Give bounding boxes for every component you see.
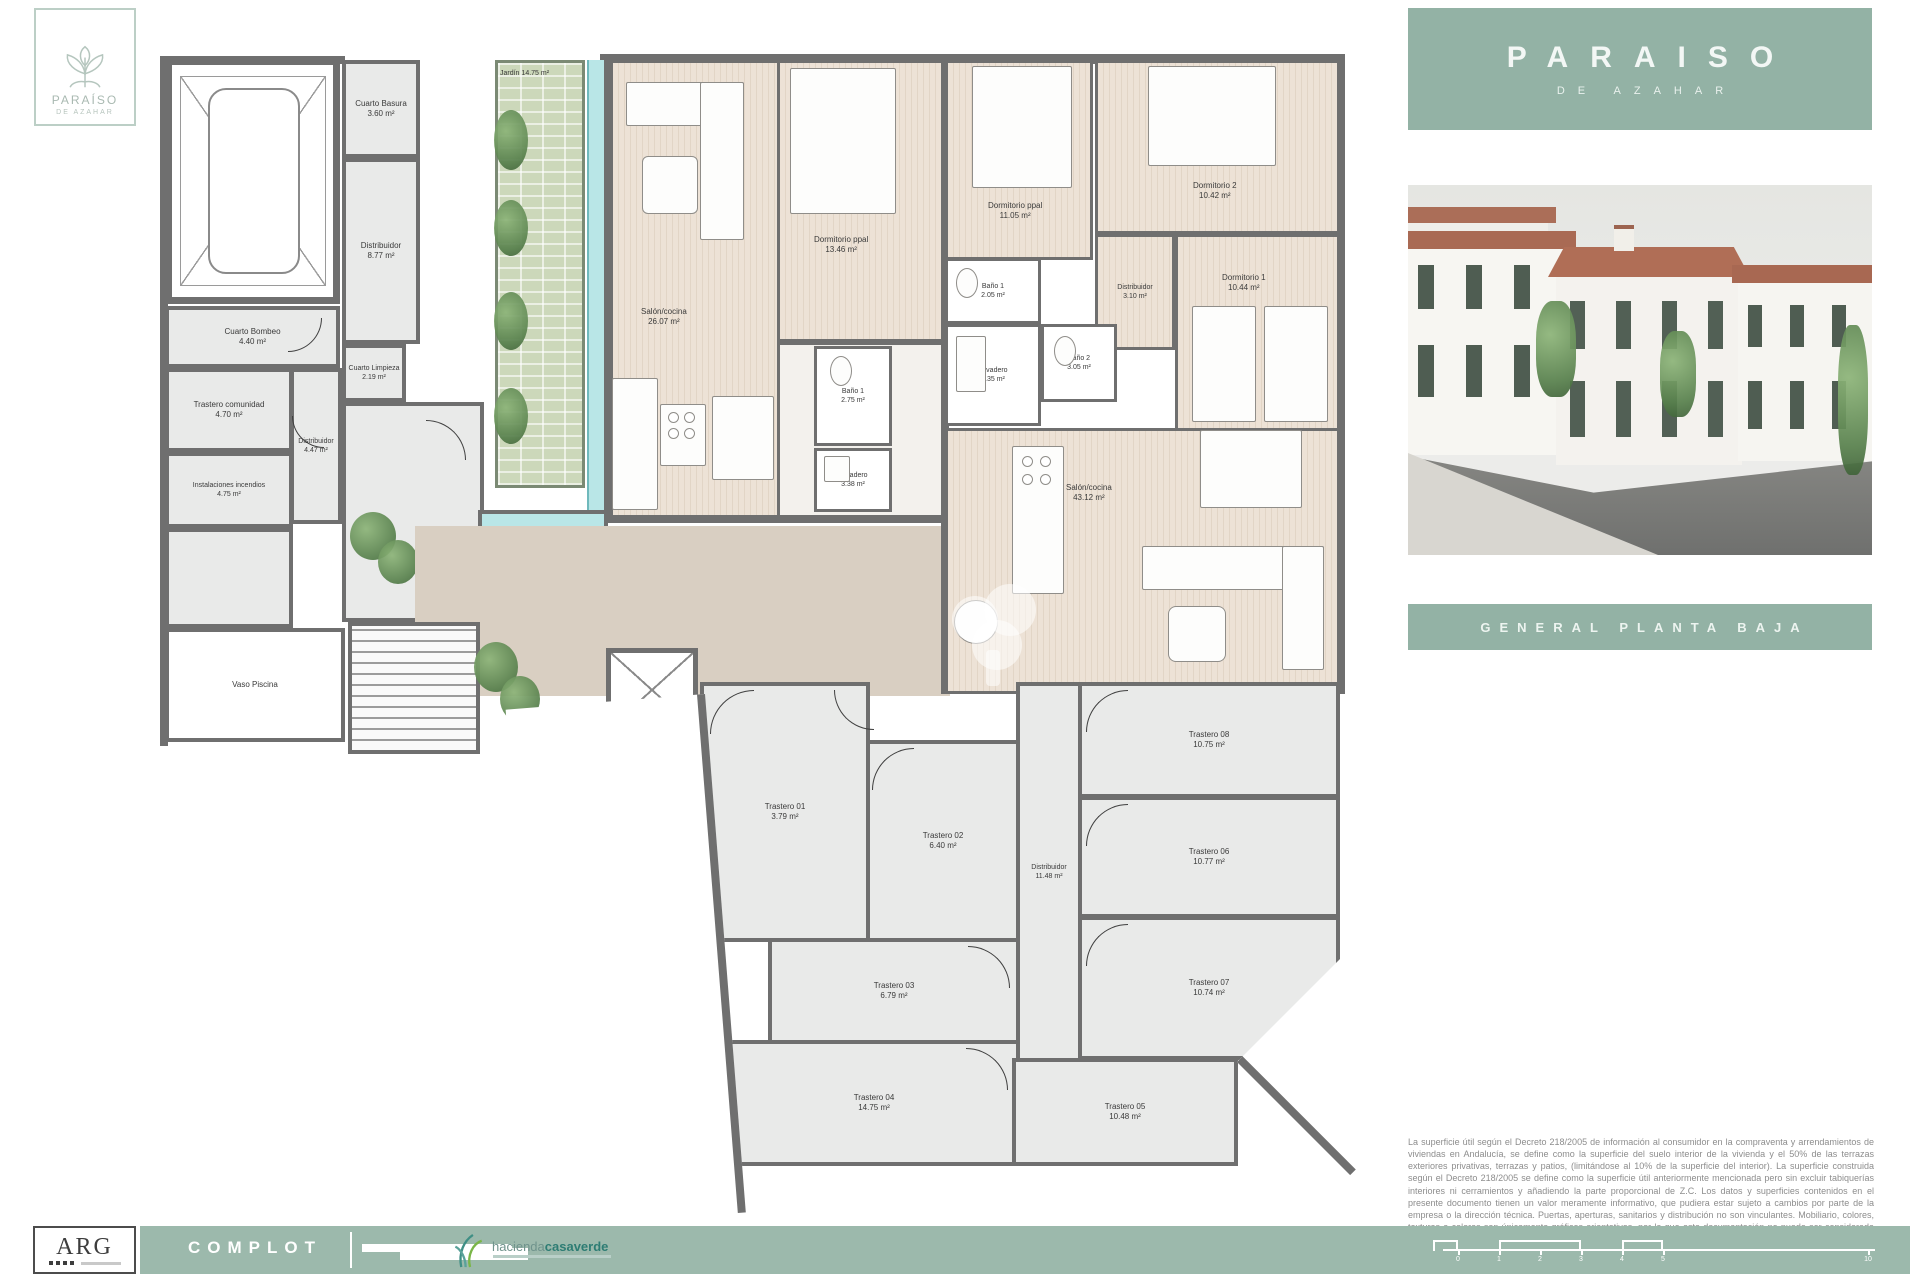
washer (824, 456, 850, 482)
car-outline (208, 88, 300, 274)
scale-bar: 0 1 2 3 4 5 10 (1395, 1232, 1900, 1268)
building-photo (1408, 185, 1872, 555)
panel-subtitle: DE AZAHAR (1544, 85, 1736, 97)
photo-window-row (1570, 301, 1730, 349)
plan-banner: GENERAL PLANTA BAJA (1408, 604, 1872, 650)
room-label: Dormitorio 210.42 m² (1193, 181, 1237, 202)
scale-number: 0 (1456, 1256, 1460, 1263)
room-label: Trastero 0510.48 m² (1105, 1102, 1146, 1123)
furniture-kitchen-counter (612, 378, 658, 510)
room-label: Trastero 0610.77 m² (1189, 847, 1230, 868)
room-trastero-comunidad: Trastero comunidad4.70 m² (165, 368, 293, 452)
room-label: Trastero 0710.74 m² (1189, 978, 1230, 999)
room-label: Dormitorio ppal13.46 m² (814, 235, 868, 256)
room-cuarto-basura: Cuarto Basura3.60 m² (342, 60, 420, 158)
furniture-bed (972, 66, 1072, 188)
room-instalaciones-incendios: Instalaciones incendios4.75 m² (165, 452, 293, 528)
burner (1040, 456, 1051, 467)
arg-logo-text: ARG (56, 1235, 113, 1259)
photo-roof (1408, 231, 1576, 249)
photo-window-row (1570, 381, 1730, 437)
burner (684, 412, 695, 423)
scale-number: 10 (1864, 1256, 1872, 1263)
scale-number: 1 (1497, 1256, 1501, 1263)
burner (668, 412, 679, 423)
photo-tree (1660, 331, 1696, 417)
room-label: Trastero 036.79 m² (874, 981, 915, 1002)
furniture-dining-table (1200, 430, 1302, 508)
room-label: Trastero comunidad4.70 m² (194, 400, 265, 421)
garden-label: Jardín 14.75 m² (500, 70, 580, 79)
furniture-bed (1148, 66, 1276, 166)
room-label: Distribuidor3.10 m² (1117, 283, 1152, 301)
room-label: Cuarto Bombeo4.40 m² (224, 327, 280, 348)
room-label: Instalaciones incendios4.75 m² (193, 481, 265, 499)
photo-roof (1408, 207, 1556, 223)
room-left-filler (165, 528, 293, 628)
toilet (830, 356, 852, 386)
scale-bar-step (1433, 1240, 1458, 1251)
burner (1022, 456, 1033, 467)
hacienda-casaverde-tagline (493, 1255, 611, 1258)
room-trastero-05: Trastero 0510.48 m² (1012, 1058, 1238, 1166)
room-label: Trastero 0810.75 m² (1189, 730, 1230, 751)
hacienda-casaverde-logo: haciendacasaverde (492, 1239, 608, 1254)
complot-logo-text: COMPLOT (188, 1238, 322, 1258)
room-label: Distribuidor8.77 m² (361, 241, 401, 262)
room-bano-1-mid: Baño 12.75 m² (814, 346, 892, 446)
room-label: Vaso Piscina (232, 680, 278, 690)
room-label: Cuarto Basura3.60 m² (355, 99, 407, 120)
burner (684, 428, 695, 439)
photo-window-row (1418, 265, 1558, 309)
plan-banner-label: GENERAL PLANTA BAJA (1471, 620, 1808, 635)
room-label: Dormitorio ppal11.05 m² (988, 201, 1042, 222)
scale-number: 2 (1538, 1256, 1542, 1263)
brochure-page: PARAÍSO DE AZAHAR Cuarto Bombeo4.40 m² T… (0, 0, 1920, 1280)
toilet (956, 268, 978, 298)
wall-diagonal-storage-left (506, 694, 746, 1228)
furniture-bed (1192, 306, 1256, 422)
photo-tree (1838, 325, 1868, 475)
panel-header: PARAISO DE AZAHAR (1408, 8, 1872, 130)
room-label: Baño 12.05 m² (981, 282, 1005, 300)
scale-number: 5 (1661, 1256, 1665, 1263)
room-label: Salón/cocina43.12 m² (1066, 483, 1112, 504)
furniture-bed (790, 68, 896, 214)
room-label: Trastero 026.40 m² (923, 831, 964, 852)
burner (1022, 474, 1033, 485)
room-label: Trastero 013.79 m² (765, 802, 806, 823)
room-label: Trastero 0414.75 m² (854, 1093, 895, 1114)
complot-logo-bar (350, 1232, 352, 1268)
scale-number: 4 (1620, 1256, 1624, 1263)
burner (1040, 474, 1051, 485)
room-label: Cuarto Limpieza2.19 m² (349, 364, 400, 382)
furniture-kitchen-island (660, 404, 706, 466)
scale-number: 3 (1579, 1256, 1583, 1263)
brand-logo-subtitle: DE AZAHAR (56, 109, 114, 116)
photo-roof (1732, 265, 1872, 283)
brand-logo-title: PARAÍSO (52, 93, 118, 107)
furniture-sofa (1282, 546, 1324, 670)
photo-roof (1548, 247, 1750, 277)
room-label: Salón/cocina26.07 m² (641, 307, 687, 328)
furniture-sofa (700, 82, 744, 240)
room-distribuidor-sotano: Distribuidor11.48 m² (1016, 682, 1082, 1062)
furniture-kitchen-island (1012, 446, 1064, 594)
watermark-icon (986, 650, 1000, 686)
panel-title: PARAISO (1485, 41, 1795, 75)
photo-tree (1536, 301, 1576, 397)
staircase (348, 622, 480, 754)
azahar-plant-icon (58, 41, 112, 93)
room-label: Distribuidor11.48 m² (1031, 863, 1066, 881)
room-label: Baño 12.75 m² (841, 387, 865, 405)
furniture-table (642, 156, 698, 214)
arg-logo-dots (49, 1261, 121, 1265)
furniture-table (1168, 606, 1226, 662)
arg-logo: ARG (33, 1226, 136, 1274)
photo-chimney (1614, 225, 1634, 251)
toilet (1054, 336, 1076, 366)
garden-plant-3 (494, 292, 528, 350)
washer (956, 336, 986, 392)
hacienda-casaverde-icon (452, 1232, 488, 1270)
plant-portal-2 (378, 540, 418, 584)
garden-plant-4 (494, 388, 528, 444)
garden-plant-2 (494, 200, 528, 256)
brand-logo-box: PARAÍSO DE AZAHAR (34, 8, 136, 126)
room-vaso-piscina: Vaso Piscina (165, 628, 345, 742)
scale-bar-step (1622, 1240, 1663, 1251)
complot-logo-mark (362, 1244, 512, 1252)
furniture-dining-table (712, 396, 774, 480)
garden-plant-1 (494, 110, 528, 170)
burner (668, 428, 679, 439)
room-label: Dormitorio 110.44 m² (1222, 273, 1266, 294)
furniture-bed (1264, 306, 1328, 422)
room-bano-2-der: Baño 23.05 m² (1041, 324, 1117, 402)
room-distribuidor-2: Distribuidor8.77 m² (342, 158, 420, 344)
room-cuarto-limpieza: Cuarto Limpieza2.19 m² (342, 344, 406, 402)
